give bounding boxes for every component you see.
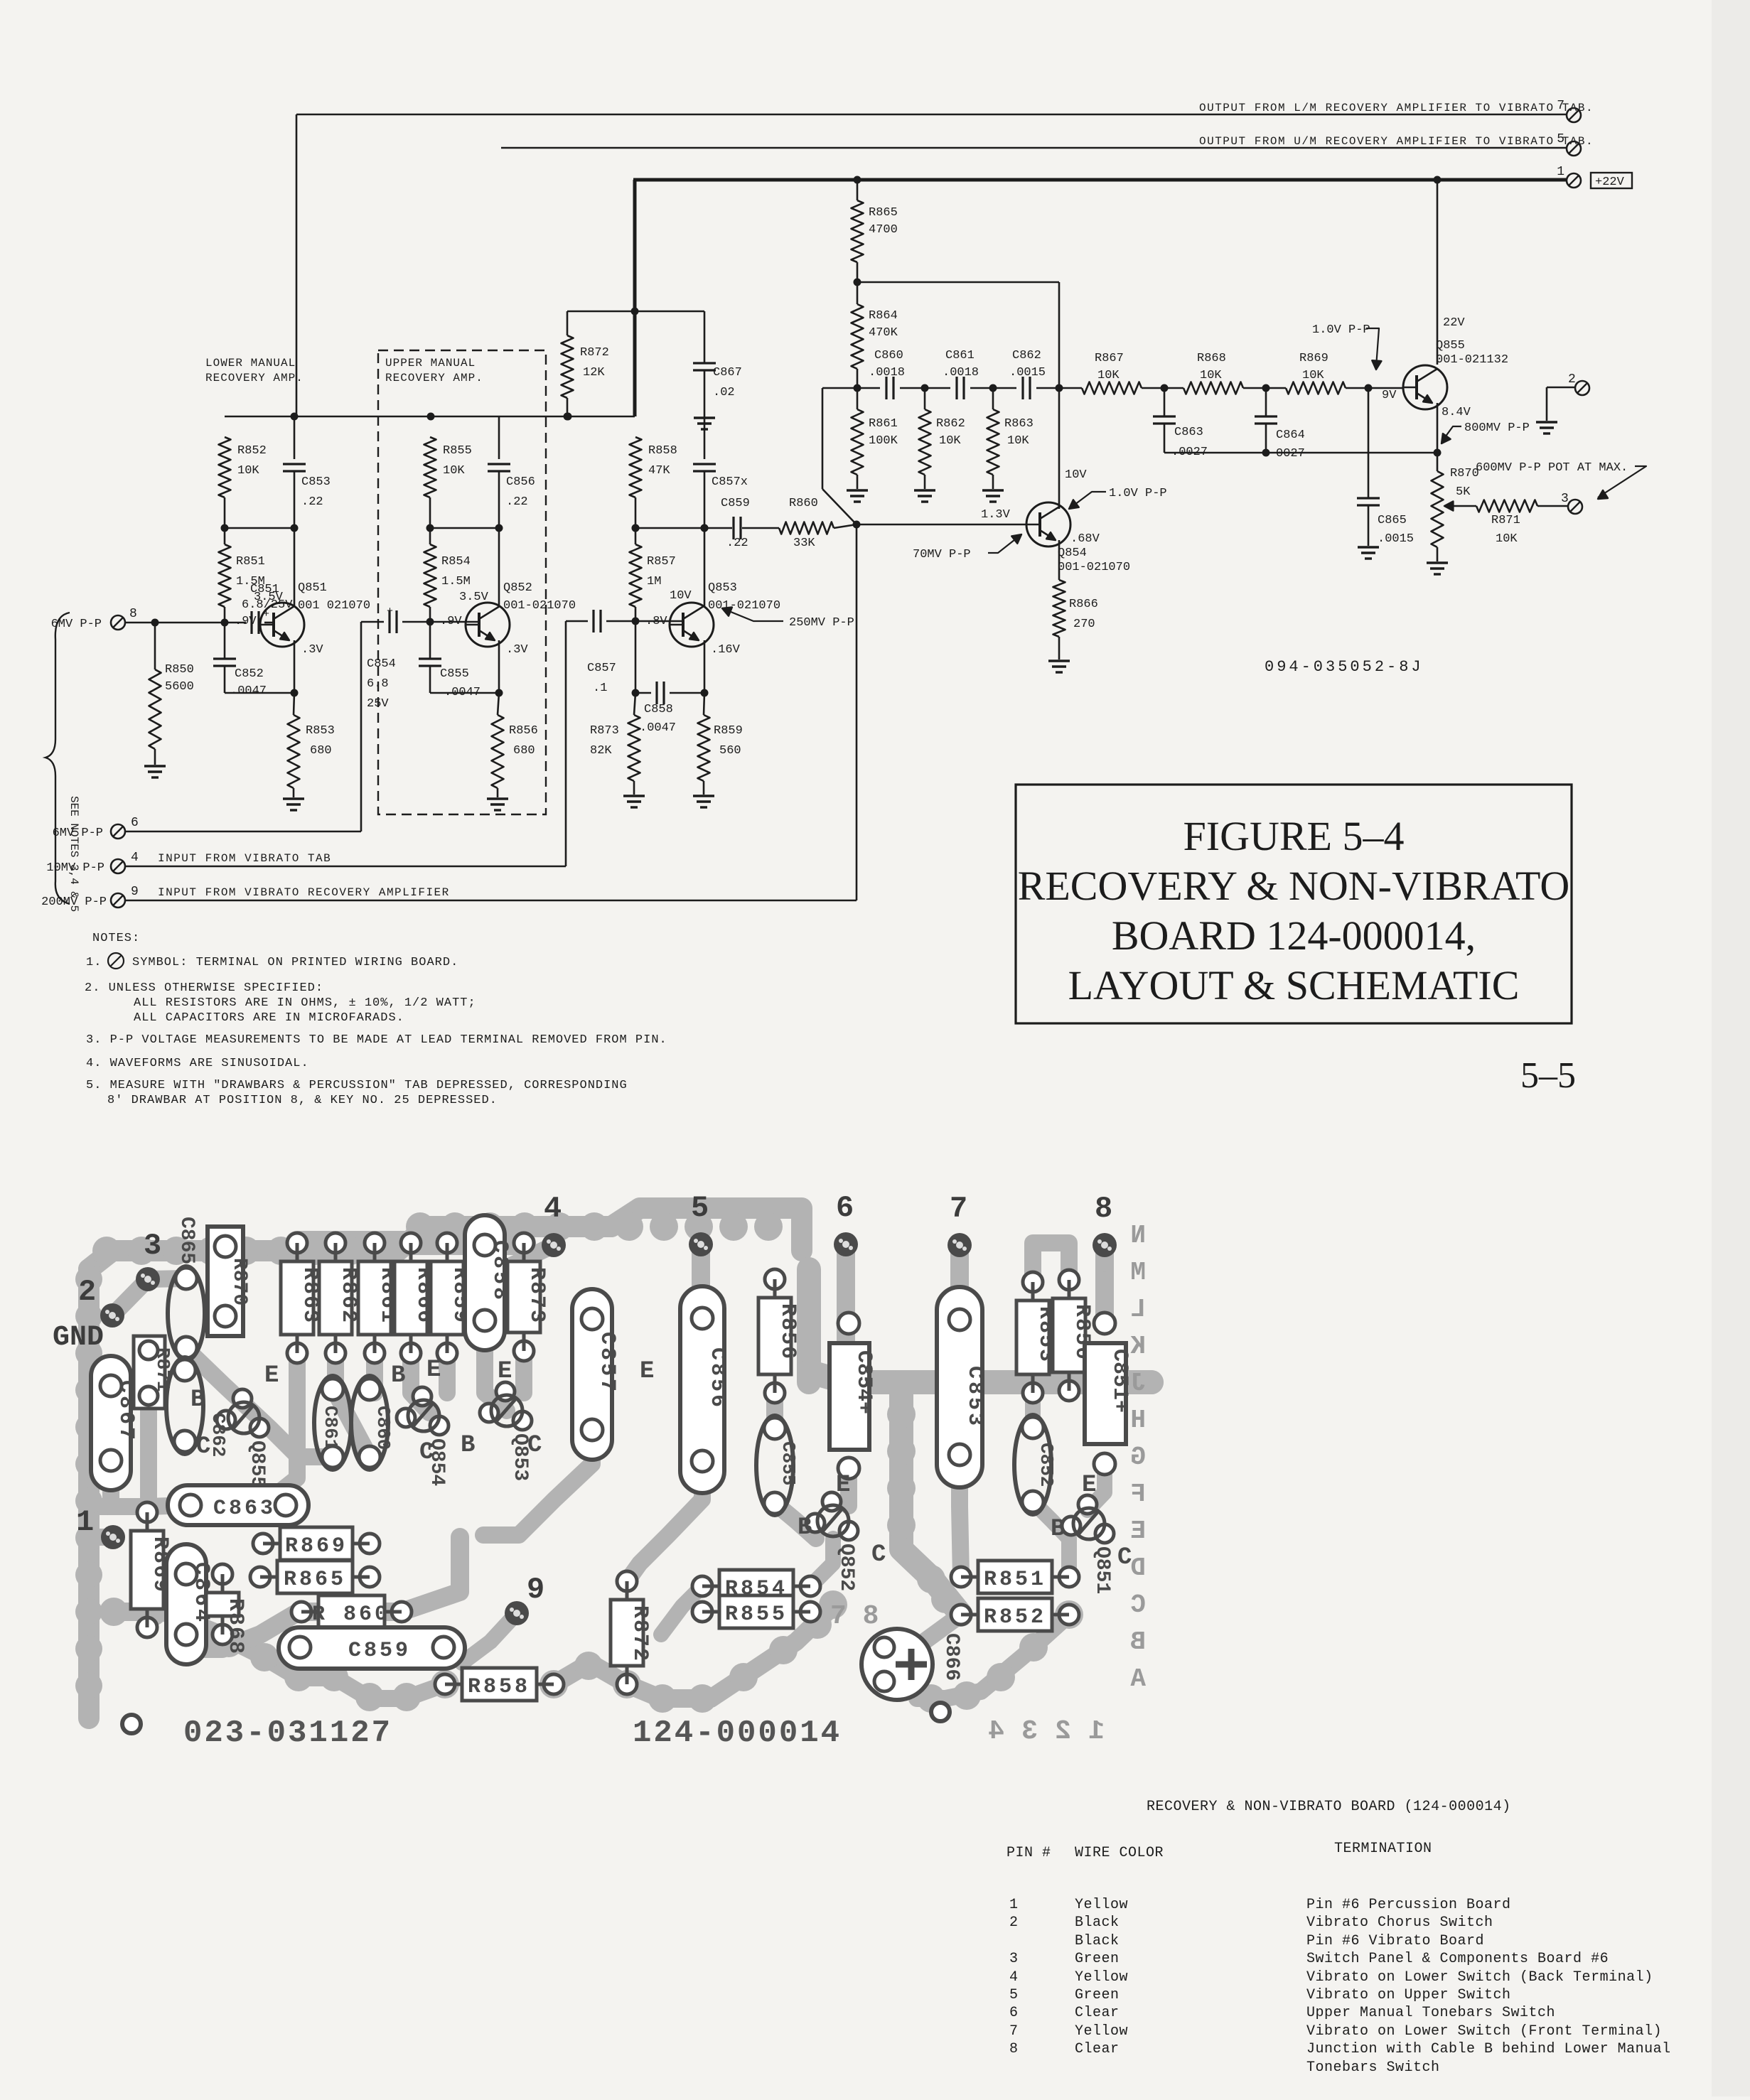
svg-text:R871: R871	[1491, 514, 1520, 527]
svg-text:1.5M: 1.5M	[441, 575, 471, 588]
svg-text:Q853: Q853	[509, 1433, 531, 1481]
svg-text:E: E	[1130, 1517, 1146, 1546]
svg-text:094-035052-8J: 094-035052-8J	[1265, 658, 1424, 676]
svg-text:E: E	[640, 1358, 654, 1385]
svg-text:OUTPUT FROM L/M RECOVERY AMPLI: OUTPUT FROM L/M RECOVERY AMPLIFIER TO VI…	[1199, 102, 1594, 114]
svg-text:5: 5	[691, 1191, 709, 1225]
svg-text:H: H	[1130, 1406, 1146, 1435]
svg-text:B: B	[798, 1514, 812, 1541]
svg-text:Yellow: Yellow	[1075, 1897, 1128, 1913]
svg-text:3.5V: 3.5V	[459, 591, 489, 604]
svg-text:B: B	[461, 1432, 475, 1459]
svg-text:R851: R851	[984, 1568, 1046, 1592]
svg-text:Black: Black	[1075, 1933, 1120, 1949]
svg-text:.0015: .0015	[1009, 366, 1046, 379]
svg-text:D: D	[1130, 1554, 1146, 1583]
svg-text:470K: 470K	[869, 326, 898, 340]
svg-text:G: G	[1130, 1443, 1146, 1472]
svg-text:J: J	[1130, 1369, 1146, 1398]
svg-text:RECOVERY & NON-VIBRATO: RECOVERY & NON-VIBRATO	[1018, 863, 1570, 909]
svg-text:LOWER MANUAL: LOWER MANUAL	[205, 357, 296, 370]
svg-text:10K: 10K	[1302, 369, 1324, 382]
svg-text:9: 9	[527, 1573, 544, 1607]
svg-text:B: B	[1130, 1627, 1146, 1657]
svg-text:3: 3	[1009, 1951, 1019, 1967]
svg-text:2. UNLESS OTHERWISE SPECIFIED:: 2. UNLESS OTHERWISE SPECIFIED:	[85, 981, 323, 995]
svg-text:5. MEASURE WITH "DRAWBARS & PE: 5. MEASURE WITH "DRAWBARS & PERCUSSION" …	[86, 1079, 628, 1092]
svg-text:5: 5	[1009, 1987, 1019, 2003]
svg-text:R856: R856	[775, 1303, 800, 1360]
svg-text:C851+: C851+	[1107, 1349, 1132, 1413]
svg-text:B: B	[1051, 1516, 1065, 1543]
svg-text:R870: R870	[228, 1258, 250, 1305]
svg-text:C865: C865	[176, 1217, 198, 1264]
svg-text:C863: C863	[1174, 426, 1203, 439]
svg-text:R862: R862	[936, 417, 965, 431]
svg-text:560: 560	[719, 744, 741, 758]
svg-text:Clear: Clear	[1075, 2041, 1120, 2057]
svg-text:1: 1	[76, 1505, 94, 1539]
svg-text:C853: C853	[962, 1366, 987, 1428]
svg-text:C859: C859	[348, 1639, 411, 1663]
svg-text:1: 1	[1557, 165, 1564, 179]
svg-text:10K: 10K	[1496, 532, 1518, 546]
svg-text:C860: C860	[372, 1406, 394, 1450]
svg-text:Q854: Q854	[1058, 546, 1087, 560]
svg-text:2: 2	[1568, 372, 1576, 387]
svg-text:.02: .02	[713, 386, 735, 399]
svg-text:Q853: Q853	[708, 581, 737, 595]
svg-text:1.0V P-P: 1.0V P-P	[1109, 487, 1167, 500]
svg-text:3. P-P VOLTAGE MEASUREMENTS TO: 3. P-P VOLTAGE MEASUREMENTS TO BE MADE A…	[86, 1033, 667, 1047]
svg-text:R870: R870	[1450, 467, 1479, 480]
svg-text:270: 270	[1073, 618, 1095, 631]
svg-text:2: 2	[1055, 1716, 1071, 1747]
svg-text:12K: 12K	[583, 366, 605, 379]
svg-text:5–5: 5–5	[1520, 1055, 1576, 1096]
svg-text:R854: R854	[441, 555, 471, 569]
svg-text:NOTES:: NOTES:	[92, 932, 140, 945]
svg-text:10V: 10V	[670, 589, 692, 603]
svg-text:Green: Green	[1075, 1951, 1120, 1967]
svg-text:10V: 10V	[1065, 468, 1087, 482]
svg-text:Q852: Q852	[503, 581, 532, 595]
svg-text:023-031127: 023-031127	[183, 1716, 392, 1751]
svg-text:FIGURE 5–4: FIGURE 5–4	[1183, 813, 1405, 859]
svg-text:33K: 33K	[793, 537, 815, 550]
svg-text:R850: R850	[165, 663, 194, 677]
svg-text:C853: C853	[301, 475, 331, 489]
svg-text:.0018: .0018	[869, 366, 905, 379]
svg-text:C863: C863	[213, 1497, 276, 1521]
svg-text:E: E	[426, 1357, 441, 1384]
svg-text:.16V: .16V	[711, 643, 741, 657]
svg-text:Q852: Q852	[835, 1544, 857, 1591]
svg-text:C855: C855	[440, 667, 469, 681]
svg-text:E: E	[1082, 1472, 1096, 1499]
svg-text:A: A	[1130, 1664, 1146, 1694]
svg-text:Upper Manual Tonebars Switch: Upper Manual Tonebars Switch	[1306, 2005, 1555, 2021]
svg-text:R866: R866	[1069, 598, 1098, 611]
svg-text:C856: C856	[506, 475, 535, 489]
svg-text:R860: R860	[789, 497, 818, 510]
svg-text:R855: R855	[725, 1603, 788, 1627]
svg-text:100K: 100K	[869, 434, 898, 448]
svg-text:R851: R851	[236, 555, 265, 569]
svg-text:C865: C865	[1378, 514, 1407, 527]
svg-text:Yellow: Yellow	[1075, 2023, 1128, 2040]
svg-text:7 8: 7 8	[830, 1601, 879, 1632]
svg-text:001-021070: 001-021070	[1058, 561, 1130, 574]
svg-text:5600: 5600	[165, 680, 194, 694]
svg-text:10K: 10K	[939, 434, 961, 448]
svg-text:R869: R869	[285, 1534, 348, 1558]
svg-text:R873: R873	[525, 1267, 549, 1324]
svg-text:8: 8	[1009, 2041, 1019, 2057]
svg-text:124-000014: 124-000014	[633, 1716, 842, 1751]
svg-text:001-021070: 001-021070	[503, 599, 576, 613]
svg-text:001 021070: 001 021070	[298, 599, 370, 613]
svg-text:Green: Green	[1075, 1987, 1120, 2003]
svg-text:R865: R865	[869, 206, 898, 220]
svg-text:INPUT FROM VIBRATO RECOVERY AM: INPUT FROM VIBRATO RECOVERY AMPLIFIER	[158, 886, 450, 899]
svg-text:2: 2	[78, 1275, 96, 1309]
svg-text:C857: C857	[587, 662, 616, 675]
svg-text:5K: 5K	[1456, 485, 1471, 499]
svg-text:C861: C861	[320, 1406, 341, 1450]
svg-text:C867: C867	[114, 1380, 138, 1443]
svg-text:Switch Panel & Components Boar: Switch Panel & Components Board #6	[1306, 1951, 1609, 1967]
svg-text:001-021132: 001-021132	[1436, 353, 1508, 367]
svg-text:10K: 10K	[1097, 369, 1120, 382]
svg-text:8: 8	[1095, 1192, 1112, 1226]
svg-text:10K: 10K	[443, 464, 465, 478]
svg-text:Yellow: Yellow	[1075, 1969, 1128, 1986]
svg-text:Clear: Clear	[1075, 2005, 1120, 2021]
svg-text:N: N	[1130, 1221, 1146, 1250]
svg-text:SYMBOL: TERMINAL ON PRINTED WI: SYMBOL: TERMINAL ON PRINTED WIRING BOARD…	[132, 956, 458, 969]
svg-text:7: 7	[1557, 99, 1564, 113]
svg-text:5: 5	[1557, 132, 1564, 146]
svg-text:C854+: C854+	[852, 1350, 876, 1414]
svg-text:.0047: .0047	[640, 721, 676, 735]
svg-text:9V: 9V	[1382, 389, 1397, 402]
svg-text:Q855: Q855	[246, 1441, 268, 1488]
svg-text:Vibrato on Lower Switch (Front: Vibrato on Lower Switch (Front Terminal)	[1306, 2023, 1662, 2040]
svg-text:10K: 10K	[237, 464, 259, 478]
svg-text:3: 3	[144, 1229, 161, 1263]
svg-text:RECOVERY AMP.: RECOVERY AMP.	[205, 372, 304, 384]
svg-text:C859: C859	[721, 497, 750, 510]
svg-text:GND: GND	[53, 1322, 104, 1354]
svg-text:RECOVERY AMP.: RECOVERY AMP.	[385, 372, 483, 384]
svg-text:7: 7	[1009, 2023, 1019, 2040]
svg-text:R 860: R 860	[312, 1603, 390, 1627]
svg-text:R853: R853	[306, 724, 335, 738]
svg-text:C: C	[1130, 1590, 1146, 1620]
svg-text:8.4V: 8.4V	[1442, 406, 1471, 419]
svg-text:R856: R856	[509, 724, 538, 738]
svg-text:C852: C852	[1036, 1443, 1057, 1487]
svg-text:R858: R858	[648, 444, 677, 458]
svg-text:ALL CAPACITORS ARE IN MICROFAR: ALL CAPACITORS ARE IN MICROFARADS.	[134, 1011, 404, 1025]
svg-text:C864: C864	[1276, 429, 1305, 442]
svg-text:3: 3	[1021, 1716, 1038, 1747]
svg-text:.22: .22	[726, 537, 748, 550]
svg-text:0027: 0027	[1276, 447, 1305, 461]
svg-text:C851: C851	[250, 583, 279, 596]
svg-text:680: 680	[513, 744, 535, 758]
svg-text:R865: R865	[284, 1568, 346, 1592]
svg-text:70MV P-P: 70MV P-P	[913, 548, 971, 561]
svg-text:R872: R872	[628, 1605, 652, 1662]
svg-text:C: C	[1117, 1544, 1132, 1571]
svg-text:Junction with Cable B behind L: Junction with Cable B behind Lower Manua…	[1306, 2041, 1671, 2057]
svg-text:Vibrato Chorus Switch: Vibrato Chorus Switch	[1306, 1915, 1493, 1931]
svg-text:C854: C854	[367, 657, 396, 671]
svg-text:.22: .22	[506, 495, 528, 509]
svg-text:1.: 1.	[86, 956, 102, 969]
svg-text:ALL RESISTORS ARE IN OHMS, ± 1: ALL RESISTORS ARE IN OHMS, ± 10%, 1/2 WA…	[134, 996, 476, 1010]
svg-text:+: +	[387, 605, 393, 618]
svg-text:Pin #6 Vibrato Board: Pin #6 Vibrato Board	[1306, 1933, 1484, 1949]
svg-text:R868: R868	[223, 1598, 247, 1655]
svg-text:C852: C852	[235, 667, 264, 681]
svg-text:1M: 1M	[647, 575, 661, 588]
svg-text:6: 6	[131, 816, 139, 830]
svg-text:+22V: +22V	[1595, 176, 1625, 189]
svg-text:.0047: .0047	[444, 686, 481, 699]
svg-text:8' DRAWBAR AT POSITION 8, & KE: 8' DRAWBAR AT POSITION 8, & KEY NO. 25 D…	[107, 1094, 498, 1107]
svg-text:.9V: .9V	[235, 615, 257, 628]
svg-text:1: 1	[1088, 1716, 1105, 1747]
svg-text:E: E	[264, 1362, 279, 1389]
svg-text:R873: R873	[590, 724, 619, 738]
svg-text:82K: 82K	[590, 744, 612, 758]
svg-text:R859: R859	[714, 724, 743, 738]
svg-text:K: K	[1130, 1332, 1146, 1361]
svg-text:680: 680	[310, 744, 332, 758]
svg-text:C861: C861	[945, 349, 975, 362]
svg-text:C866: C866	[940, 1633, 962, 1681]
svg-text:R867: R867	[1095, 352, 1124, 365]
svg-text:1.3V: 1.3V	[981, 508, 1011, 522]
svg-text:BOARD 124-000014,: BOARD 124-000014,	[1112, 912, 1476, 959]
svg-text:Pin #6 Percussion Board: Pin #6 Percussion Board	[1306, 1897, 1511, 1913]
svg-text:C867: C867	[713, 366, 742, 379]
svg-text:Q854: Q854	[426, 1438, 448, 1486]
svg-text:.3V: .3V	[506, 643, 528, 657]
svg-text:4: 4	[1009, 1969, 1019, 1986]
svg-text:Tonebars Switch: Tonebars Switch	[1306, 2059, 1440, 2076]
svg-text:001-021070: 001-021070	[708, 599, 780, 613]
svg-text:C855: C855	[778, 1441, 799, 1485]
svg-text:47K: 47K	[648, 464, 670, 478]
svg-text:R869: R869	[1299, 352, 1328, 365]
svg-text:7: 7	[950, 1192, 967, 1226]
svg-text:9: 9	[131, 885, 139, 899]
svg-text:R857: R857	[647, 555, 676, 569]
svg-text:3: 3	[1561, 492, 1569, 506]
svg-text:2: 2	[1009, 1915, 1019, 1931]
svg-text:4. WAVEFORMS ARE SINUSOIDAL.: 4. WAVEFORMS ARE SINUSOIDAL.	[86, 1057, 309, 1070]
svg-text:.22: .22	[301, 495, 323, 509]
svg-text:Q851: Q851	[1091, 1546, 1113, 1594]
svg-text:600MV P-P POT AT MAX.: 600MV P-P POT AT MAX.	[1476, 461, 1628, 475]
svg-text:8: 8	[129, 607, 137, 621]
svg-text:R858: R858	[468, 1675, 530, 1699]
svg-text:B: B	[391, 1362, 405, 1389]
svg-text:R852: R852	[984, 1605, 1046, 1630]
svg-text:10K: 10K	[1200, 369, 1222, 382]
svg-text:C: C	[871, 1541, 886, 1568]
svg-text:C857: C857	[595, 1332, 619, 1394]
svg-text:C858: C858	[644, 703, 673, 716]
svg-text:TERMINATION: TERMINATION	[1334, 1841, 1432, 1857]
svg-text:R855: R855	[443, 444, 472, 458]
svg-text:LAYOUT & SCHEMATIC: LAYOUT & SCHEMATIC	[1068, 962, 1520, 1008]
svg-text:RECOVERY & NON-VIBRATO BOARD (: RECOVERY & NON-VIBRATO BOARD (124-000014…	[1147, 1799, 1511, 1815]
svg-text:.0047: .0047	[230, 684, 267, 698]
svg-text:6: 6	[1009, 2005, 1019, 2021]
svg-text:.1: .1	[593, 682, 607, 695]
svg-text:.3V: .3V	[301, 643, 323, 657]
svg-text:L: L	[1130, 1295, 1146, 1324]
svg-text:R852: R852	[237, 444, 267, 458]
svg-text:C862: C862	[208, 1413, 229, 1457]
svg-text:22V: 22V	[1443, 316, 1465, 330]
svg-text:.0018: .0018	[943, 366, 979, 379]
svg-text:E: E	[498, 1358, 512, 1385]
svg-text:C862: C862	[1012, 349, 1041, 362]
svg-text:4: 4	[988, 1716, 1004, 1747]
svg-text:Vibrato on Lower Switch (Back: Vibrato on Lower Switch (Back Terminal)	[1306, 1969, 1653, 1986]
svg-text:M: M	[1130, 1258, 1146, 1287]
svg-text:C856: C856	[705, 1347, 729, 1410]
svg-text:1.0V P-P: 1.0V P-P	[1312, 323, 1370, 337]
svg-text:E: E	[836, 1472, 850, 1499]
svg-text:.68V: .68V	[1070, 532, 1100, 546]
svg-text:F: F	[1130, 1480, 1146, 1509]
svg-text:Black: Black	[1075, 1915, 1120, 1931]
svg-text:C857x: C857x	[712, 475, 748, 489]
svg-text:R863: R863	[1004, 417, 1034, 431]
svg-text:Q855: Q855	[1436, 339, 1465, 352]
svg-text:4700: 4700	[869, 223, 898, 237]
svg-text:PIN #: PIN #	[1006, 1845, 1051, 1861]
svg-text:10K: 10K	[1007, 434, 1029, 448]
svg-text:OUTPUT FROM U/M RECOVERY AMPLI: OUTPUT FROM U/M RECOVERY AMPLIFIER TO VI…	[1199, 135, 1594, 148]
svg-text:250MV P-P: 250MV P-P	[789, 616, 854, 630]
svg-text:800MV P-P: 800MV P-P	[1464, 421, 1530, 435]
svg-text:INPUT FROM VIBRATO TAB: INPUT FROM VIBRATO TAB	[158, 852, 331, 865]
svg-text:UPPER MANUAL: UPPER MANUAL	[385, 357, 476, 370]
svg-text:R864: R864	[869, 309, 898, 323]
svg-text:4: 4	[131, 851, 139, 865]
svg-text:4: 4	[544, 1192, 562, 1226]
svg-text:6: 6	[836, 1191, 854, 1225]
svg-text:R868: R868	[1197, 352, 1226, 365]
svg-text:SEE NOTES 3,4 & 5: SEE NOTES 3,4 & 5	[68, 796, 80, 912]
svg-text:.0015: .0015	[1378, 532, 1414, 546]
svg-text:WIRE COLOR: WIRE COLOR	[1075, 1845, 1164, 1861]
svg-text:+: +	[263, 608, 269, 620]
svg-text:R872: R872	[580, 346, 609, 360]
svg-text:R861: R861	[869, 417, 898, 431]
svg-text:1: 1	[1009, 1897, 1019, 1913]
svg-text:Vibrato on Upper Switch: Vibrato on Upper Switch	[1306, 1987, 1511, 2003]
svg-text:C860: C860	[874, 349, 903, 362]
svg-text:Q851: Q851	[298, 581, 327, 595]
